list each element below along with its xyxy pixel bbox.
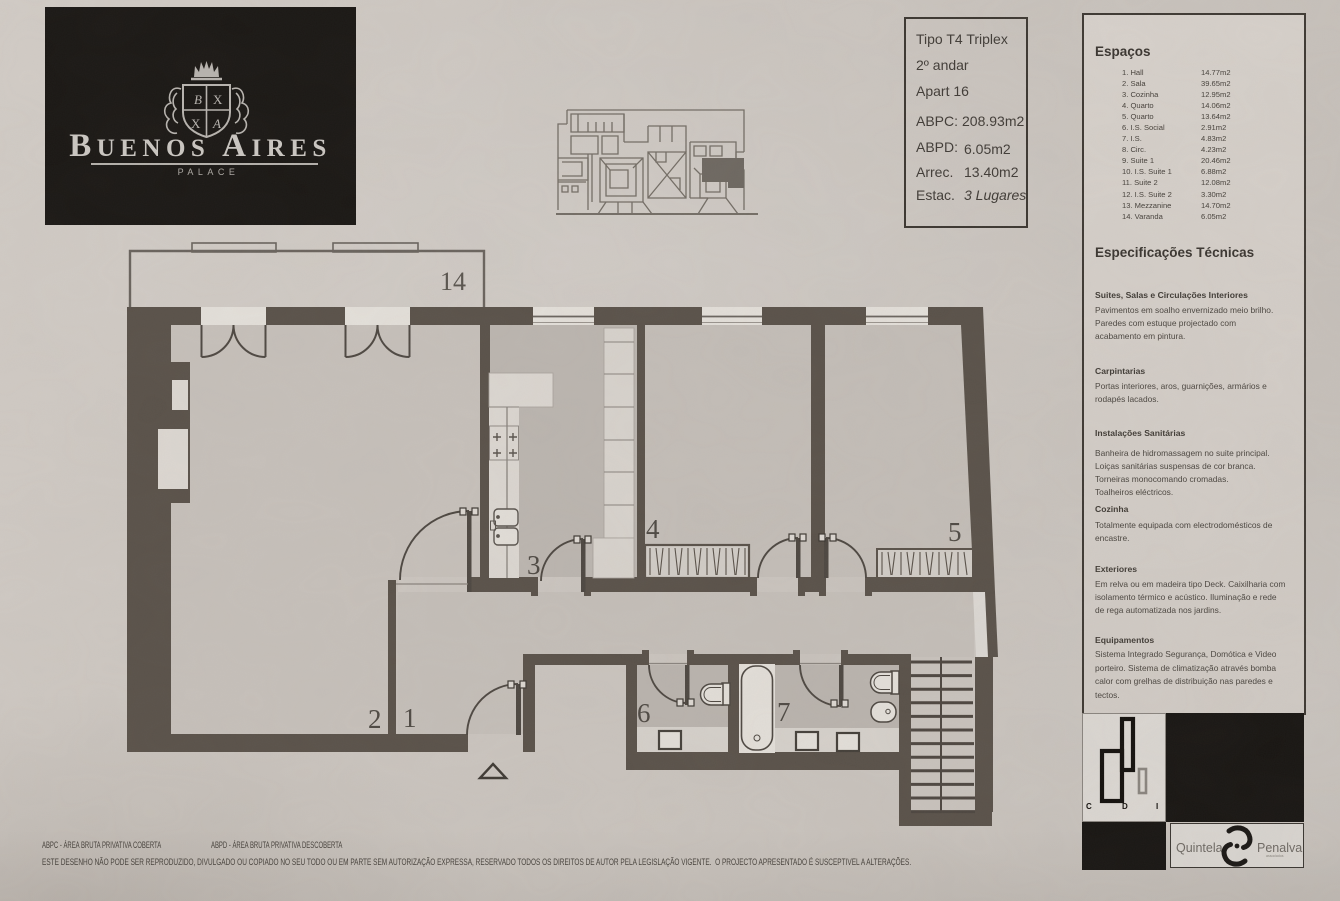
svg-text:2: 2 <box>368 704 382 734</box>
svg-text:1: 1 <box>403 703 417 733</box>
svg-text:5: 5 <box>948 517 962 547</box>
svg-text:6: 6 <box>637 698 651 728</box>
svg-text:14: 14 <box>440 267 466 296</box>
svg-text:4: 4 <box>646 514 660 544</box>
svg-text:3: 3 <box>527 550 541 580</box>
svg-text:7: 7 <box>777 697 791 727</box>
